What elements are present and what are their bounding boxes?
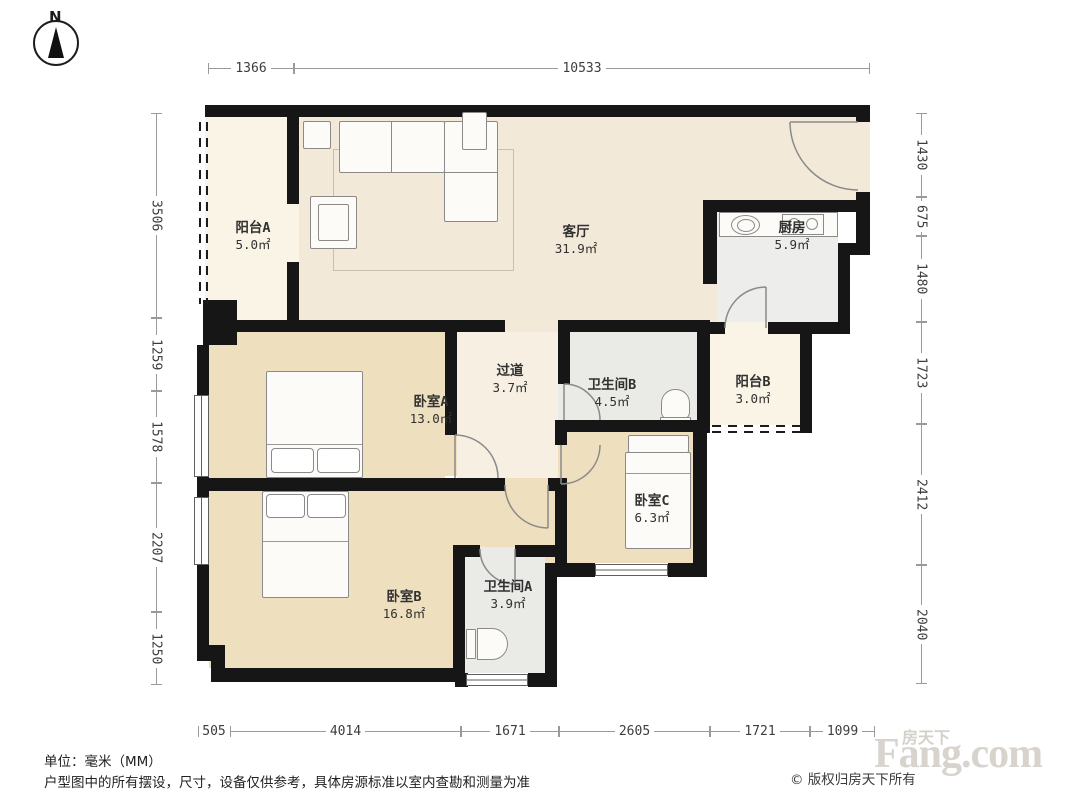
wall-segment [205, 105, 870, 117]
pillow [307, 494, 346, 518]
pillow [317, 448, 360, 473]
sofa [339, 121, 445, 173]
dimension-left: 1250 [148, 612, 164, 685]
window [466, 674, 528, 686]
floor-opening [558, 384, 570, 420]
wall-segment [515, 545, 557, 557]
wall-segment [558, 320, 697, 332]
wall-segment [558, 332, 570, 384]
wall-segment [697, 320, 710, 433]
room-label-balcony-a: 阳台A 5.0㎡ [235, 220, 270, 252]
floor-plan-page: N [0, 0, 1065, 795]
dimension-bottom: 1099 [810, 723, 875, 739]
sofa-cushion-line [391, 122, 392, 172]
room-label-bedroom-c: 卧室C 6.3㎡ [634, 493, 669, 525]
room-label-bedroom-b: 卧室B 16.8㎡ [383, 589, 426, 621]
wall-segment [287, 117, 299, 204]
room-label-corridor: 过道 3.7㎡ [492, 363, 527, 395]
dimension-left: 3506 [148, 113, 164, 318]
armchair-seat [318, 204, 349, 241]
balcony-open-edge [712, 425, 800, 427]
wall-segment [203, 320, 505, 332]
wall-segment [838, 243, 850, 332]
wall-segment [703, 322, 725, 334]
wall-segment [528, 673, 557, 687]
dimension-left: 1259 [148, 318, 164, 391]
dimension-bottom: 4014 [230, 723, 461, 739]
toilet [477, 628, 508, 660]
room-label-bathroom-a: 卫生间A 3.9㎡ [484, 579, 533, 611]
balcony-open-edge [712, 431, 800, 433]
wall-segment [548, 478, 567, 491]
floor-opening [505, 478, 548, 491]
dimension-bottom: 1671 [461, 723, 559, 739]
floor-opening [480, 547, 515, 557]
wall-segment [453, 545, 465, 673]
compass-arrow-icon [48, 27, 64, 58]
wall-segment [211, 645, 225, 682]
dimension-left: 1578 [148, 391, 164, 483]
pillow [266, 494, 305, 518]
wall-segment [668, 563, 707, 577]
wall-segment [555, 484, 567, 577]
wall-segment [545, 563, 557, 687]
dimension-right: 2040 [913, 565, 929, 684]
blanket-line [267, 444, 362, 445]
blanket-line [626, 473, 690, 474]
balcony-open-edge [199, 122, 201, 304]
pillow [271, 448, 314, 473]
dimension-top: 10533 [294, 60, 870, 76]
floor-opening [503, 318, 558, 332]
dimension-right: 1480 [913, 236, 929, 322]
dimension-bottom: 2605 [559, 723, 710, 739]
compass-north-label: N [49, 8, 62, 26]
side-table [303, 121, 331, 149]
window [194, 395, 209, 477]
wall-segment [197, 345, 209, 395]
room-label-bathroom-b: 卫生间B 4.5㎡ [588, 377, 637, 409]
toilet-tank [466, 629, 476, 659]
blanket-line [263, 541, 348, 542]
wall-segment [197, 563, 209, 653]
floor-opening [287, 204, 299, 262]
floor-opening [445, 435, 457, 476]
dimension-top: 1366 [208, 60, 294, 76]
wall-segment [555, 432, 567, 445]
disclaimer-note: 户型图中的所有摆设，尺寸，设备仅供参考，具体房源标准以室内查勘和测量为准 [44, 771, 530, 791]
wall-segment [555, 420, 707, 432]
window [194, 497, 209, 565]
wall-segment [703, 200, 717, 284]
floor-corridor [457, 332, 558, 478]
dimension-left: 2207 [148, 483, 164, 612]
window [595, 564, 668, 576]
room-label-balcony-b: 阳台B 3.0㎡ [735, 374, 770, 406]
dimension-right: 1723 [913, 322, 929, 424]
room-label-kitchen: 厨房 5.9㎡ [774, 220, 809, 252]
wall-segment [213, 668, 463, 682]
wall-segment [800, 332, 812, 433]
room-label-bedroom-a: 卧室A 13.0㎡ [410, 394, 453, 426]
wall-segment [703, 200, 856, 212]
toilet [661, 389, 690, 420]
wall-segment [693, 425, 707, 577]
floor-opening [725, 322, 768, 332]
floor-living-room [705, 117, 856, 200]
floor-opening [703, 284, 717, 322]
dimension-right: 1430 [913, 113, 929, 197]
dimension-right: 2412 [913, 424, 929, 565]
kitchen-sink-basin [737, 219, 755, 232]
floor-balcony-a [205, 117, 287, 320]
bed-headboard [628, 435, 689, 453]
sofa-cushion-line [445, 172, 497, 173]
copyright-note: © 版权归房天下所有 [790, 768, 916, 788]
wall-segment [287, 262, 299, 324]
dimension-right: 675 [913, 197, 929, 236]
wall-segment [197, 478, 505, 491]
balcony-open-edge [206, 122, 208, 304]
wall-cabinet [462, 112, 487, 150]
room-label-living-room: 客厅 31.9㎡ [555, 224, 598, 256]
dimension-bottom: 1721 [710, 723, 810, 739]
wall-segment [856, 105, 870, 122]
dimension-bottom: 505 [198, 723, 230, 739]
floor-opening [856, 122, 870, 192]
unit-note: 单位：毫米（MM） [44, 750, 162, 770]
